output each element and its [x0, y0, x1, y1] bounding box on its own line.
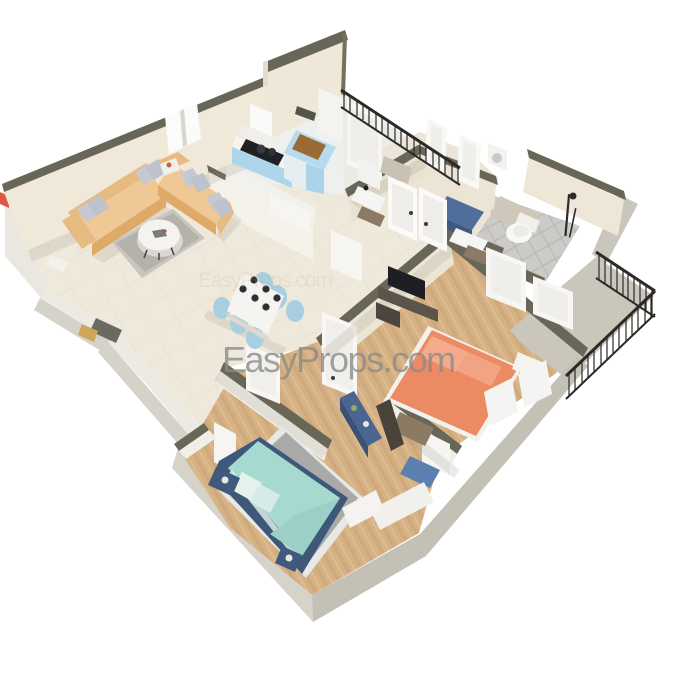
svg-text:EasyProps.com: EasyProps.com [222, 339, 455, 380]
svg-text:EasyProps.com: EasyProps.com [198, 269, 333, 292]
